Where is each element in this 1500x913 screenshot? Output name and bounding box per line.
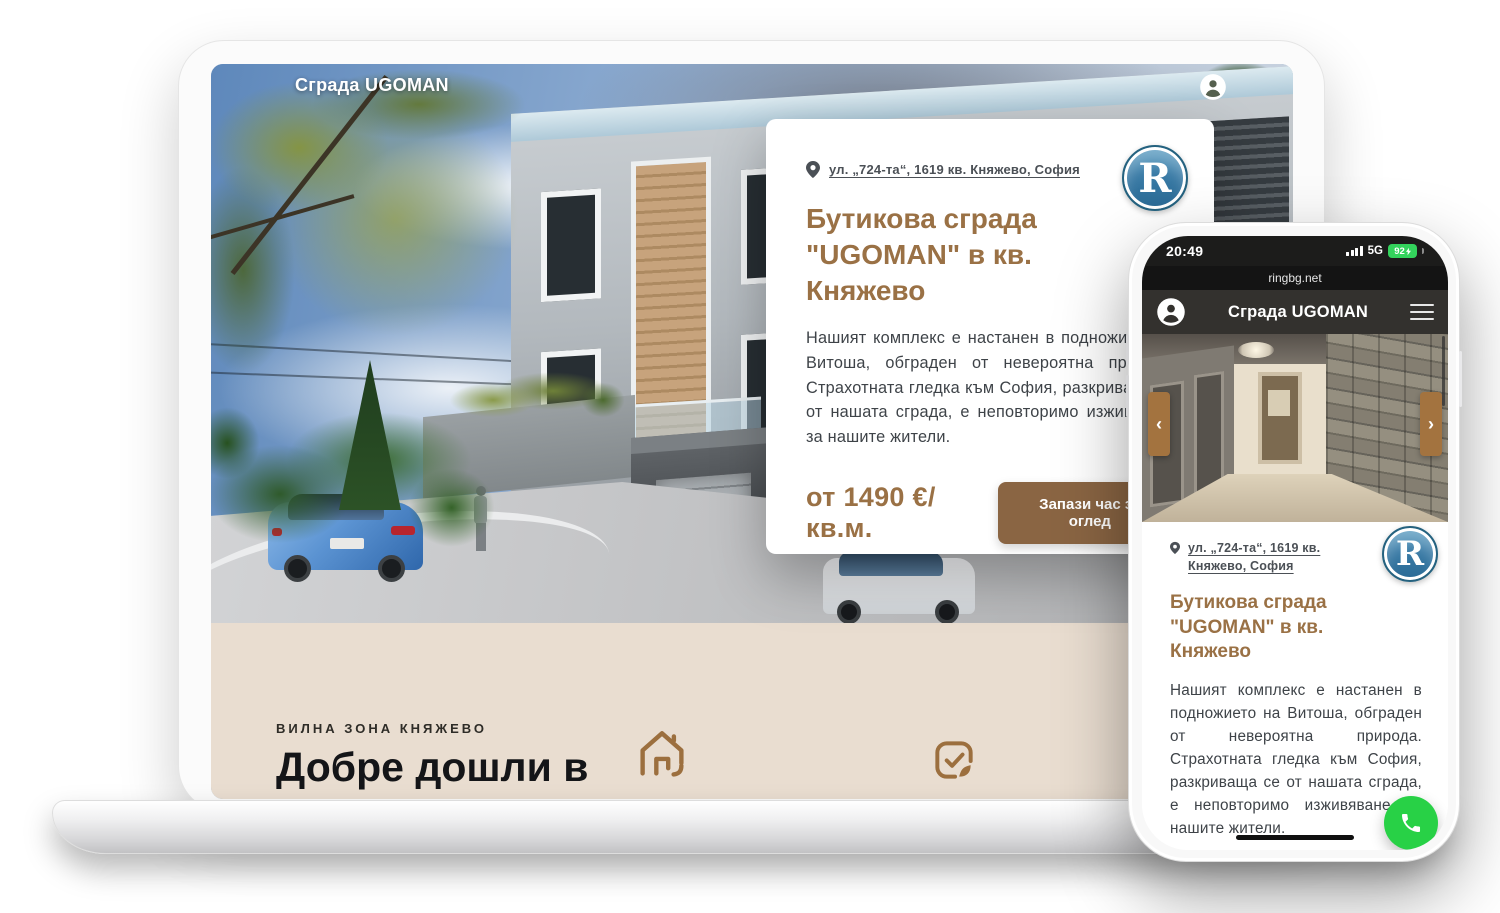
site-brand: Сграда UGOMAN: [295, 75, 449, 96]
call-button[interactable]: [1384, 796, 1438, 850]
welcome-text: ВИЛНА ЗОНА КНЯЖЕВО Добре дошли в уютното…: [276, 721, 836, 799]
signal-icon: [1346, 246, 1363, 256]
battery-percent: 92: [1394, 246, 1405, 257]
home-indicator[interactable]: [1236, 835, 1354, 840]
company-logo[interactable]: R: [1382, 526, 1438, 582]
pin-icon: [806, 161, 820, 178]
volume-down-button: [1126, 375, 1129, 417]
hallway-corridor: [1234, 364, 1326, 478]
power-button: [1459, 351, 1462, 407]
checkbox-icon: [929, 735, 979, 790]
suv-wheel: [935, 600, 959, 623]
status-bar: 20:49 5G 92: [1142, 236, 1448, 266]
company-logo[interactable]: R: [1122, 145, 1188, 211]
phone-frame: 20:49 5G 92 ringbg.net: [1128, 222, 1460, 862]
price-label: от 1490 €/кв.м.: [806, 482, 998, 544]
phone-screen: 20:49 5G 92 ringbg.net: [1142, 236, 1448, 850]
clock: 20:49: [1166, 243, 1203, 259]
elevator: [1258, 372, 1302, 464]
user-account-icon[interactable]: [1156, 297, 1186, 327]
mobile-site-header: Сграда UGOMAN: [1142, 290, 1448, 334]
browser-address-bar[interactable]: ringbg.net: [1142, 266, 1448, 290]
suv-glass: [839, 552, 943, 576]
battery-cap: [1422, 248, 1424, 254]
battery-icon: 92: [1388, 244, 1417, 258]
status-icons: 5G 92: [1346, 244, 1424, 258]
ceiling-light: [1238, 342, 1274, 358]
address-link[interactable]: ул. „724-та“, 1619 кв. Княжево, София: [1188, 540, 1374, 575]
volume-up-button: [1126, 335, 1129, 365]
menu-icon[interactable]: [1410, 304, 1434, 320]
r-logo: R: [1382, 526, 1438, 582]
carousel-prev-button[interactable]: ‹: [1148, 392, 1170, 456]
address-row: ул. „724-та“, 1619 кв. Княжево, София: [806, 161, 1176, 179]
address-link[interactable]: ул. „724-та“, 1619 кв. Княжево, София: [829, 161, 1080, 179]
user-icon: [1156, 297, 1186, 327]
network-badge: 5G: [1368, 245, 1383, 257]
home-icon: [631, 723, 693, 790]
charging-bolt-icon: [1406, 247, 1411, 256]
image-carousel: ‹ ›: [1142, 334, 1448, 522]
desktop-and-mobile-mockup: Сграда UGOMAN ул. „724-та“, 1619 кв. Кня…: [0, 0, 1500, 913]
carousel-next-button[interactable]: ›: [1420, 392, 1442, 456]
user-account-icon[interactable]: [1199, 73, 1227, 101]
tree-foliage-left: [211, 64, 571, 414]
address-row: ул. „724-та“, 1619 кв. Княжево, София: [1142, 522, 1374, 575]
apartment-door: [1194, 371, 1224, 495]
listing-description: Нашият комплекс е настанен в подножието …: [806, 326, 1178, 451]
listing-title: Бутикова сграда "UGOMAN" в кв. Княжево: [806, 201, 1141, 308]
section-title-line1: Добре дошли в: [276, 745, 836, 791]
r-logo: R: [1122, 145, 1188, 211]
section-title-line2: уютното селище: [276, 791, 836, 799]
section-title: Добре дошли в уютното селище: [276, 745, 836, 799]
phone-icon: [1399, 811, 1423, 835]
listing-title: Бутикова сграда "UGOMAN" в кв. Княжево: [1170, 591, 1385, 665]
white-suv: [823, 552, 975, 623]
suv-wheel: [837, 600, 861, 623]
user-icon: [1199, 73, 1227, 101]
scrollbar[interactable]: [1442, 336, 1445, 406]
section-eyebrow: ВИЛНА ЗОНА КНЯЖЕВО: [276, 721, 836, 736]
pin-icon: [1170, 540, 1180, 556]
price-row: от 1490 €/кв.м. Запази час за оглед: [806, 488, 1182, 538]
site-brand: Сграда UGOMAN: [1186, 303, 1410, 322]
